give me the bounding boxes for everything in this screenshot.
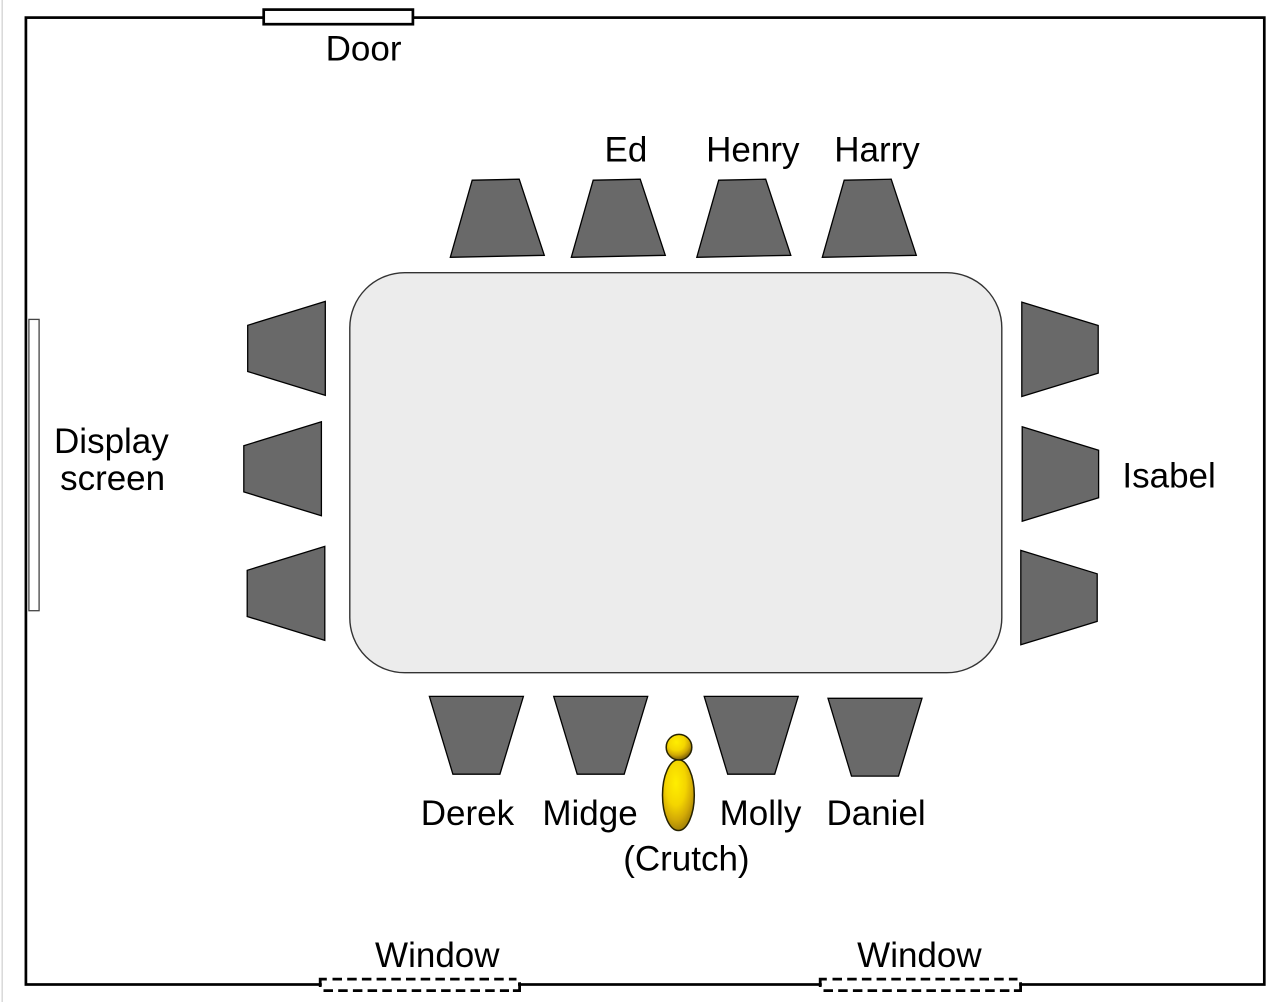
svg-text:Window: Window — [857, 936, 982, 975]
svg-text:Molly: Molly — [720, 794, 802, 833]
svg-text:Ed: Ed — [604, 131, 647, 170]
svg-text:(Crutch): (Crutch) — [623, 839, 749, 878]
svg-text:Derek: Derek — [421, 794, 515, 833]
svg-text:Isabel: Isabel — [1122, 457, 1215, 496]
svg-text:Harry: Harry — [834, 131, 920, 170]
svg-text:screen: screen — [60, 459, 165, 498]
svg-text:Daniel: Daniel — [826, 794, 925, 833]
svg-text:Window: Window — [375, 936, 500, 975]
svg-text:Midge: Midge — [542, 794, 637, 833]
svg-text:Henry: Henry — [706, 131, 800, 170]
svg-text:Door: Door — [326, 30, 402, 69]
svg-text:Display: Display — [54, 422, 169, 461]
